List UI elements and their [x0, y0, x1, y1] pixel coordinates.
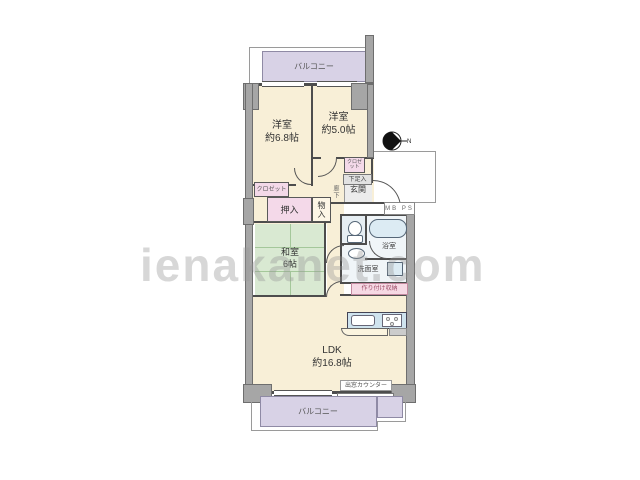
futon-closet: 押入 [267, 197, 312, 222]
counter-edge [341, 328, 388, 336]
balcony-bottom-label: バルコニー [262, 404, 374, 418]
closet-east-label: クロゼット [345, 160, 364, 171]
burner-icon [390, 322, 394, 326]
balcony-bottom-label-text: バルコニー [298, 406, 338, 417]
toilet-icon [348, 221, 362, 236]
balcony-outline-line [377, 421, 378, 431]
kitchen-sink-icon [351, 315, 375, 326]
wall [252, 295, 326, 297]
floor-plan: バルコニー クロゼット [0, 0, 640, 480]
storage-closet: 物入 [312, 197, 331, 222]
outer-wall [245, 83, 253, 403]
washing-machine-icon [387, 262, 403, 276]
washroom-label-text: 洗面室 [358, 266, 379, 273]
meter-box-label: MB PS [385, 206, 414, 212]
sink-icon [348, 248, 365, 259]
room-name: 洋室 [329, 111, 349, 124]
kitchen-counter [347, 312, 407, 329]
balcony-outline-line [405, 402, 406, 422]
wall [340, 243, 367, 245]
tatami-grid-line [290, 271, 291, 296]
wall-pillar [365, 35, 374, 83]
balcony-top: バルコニー [262, 51, 366, 82]
balcony-outline-line [249, 47, 250, 83]
window [262, 81, 304, 87]
room-name: LDK [322, 344, 341, 357]
refrigerator-space [389, 328, 407, 336]
compass: N [380, 128, 412, 154]
bedroom-west-label: 洋室 約6.8帖 [253, 118, 311, 146]
tatami-grid-line [290, 224, 291, 247]
bathtub-icon [369, 219, 407, 238]
hallway-label: 廊下 [330, 180, 341, 203]
room-size: 6帖 [283, 259, 297, 271]
wall [365, 214, 367, 244]
bay-window-counter-label: 出窓カウンター [345, 383, 387, 389]
balcony-bottom-step [377, 396, 403, 418]
balcony-outline-line [377, 421, 406, 422]
porch-outline-line [435, 151, 436, 203]
closet-west-label: クロゼット [256, 187, 286, 193]
built-in-storage: 作り付け収納 [351, 283, 408, 295]
burner-icon [394, 317, 398, 321]
built-in-storage-label: 作り付け収納 [361, 286, 397, 292]
compass-north-label: N [407, 139, 411, 145]
room-size: 約5.0帖 [322, 124, 356, 137]
bay-window-counter: 出窓カウンター [340, 380, 392, 391]
toilet-tank-icon [347, 235, 363, 243]
closet-east: クロゼット [344, 157, 365, 173]
balcony-outline-line [251, 402, 252, 431]
stove-icon [382, 314, 402, 327]
wall-pillar [243, 198, 254, 225]
bedroom-east-label: 洋室 約5.0帖 [313, 110, 364, 138]
outer-wall [406, 202, 415, 403]
balcony-outline-line [251, 430, 378, 431]
closet-west: クロゼット [254, 182, 289, 197]
storage-closet-label: 物入 [316, 201, 327, 219]
room-name: 洋室 [272, 119, 292, 132]
room-name: 和室 [281, 247, 299, 259]
room-size: 約6.8帖 [265, 132, 299, 145]
ldk-label: LDK 約16.8帖 [262, 343, 402, 371]
balcony-top-label: バルコニー [294, 63, 334, 71]
entrance-label: 玄関 [344, 183, 372, 196]
burner-icon [386, 317, 390, 321]
meter-box: MB PS [384, 202, 415, 215]
hallway-label-text: 廊下 [331, 185, 340, 199]
japanese-room-label: 和室 6帖 [255, 245, 325, 273]
room-size: 約16.8帖 [312, 357, 351, 370]
outer-wall [367, 84, 374, 158]
balcony-outline-line [249, 47, 367, 48]
shoe-cabinet-label: 下足入 [348, 177, 366, 183]
futon-closet-label: 押入 [280, 203, 298, 216]
washroom-label: 洗面室 [350, 264, 386, 274]
entrance-label-text: 玄関 [350, 184, 366, 195]
